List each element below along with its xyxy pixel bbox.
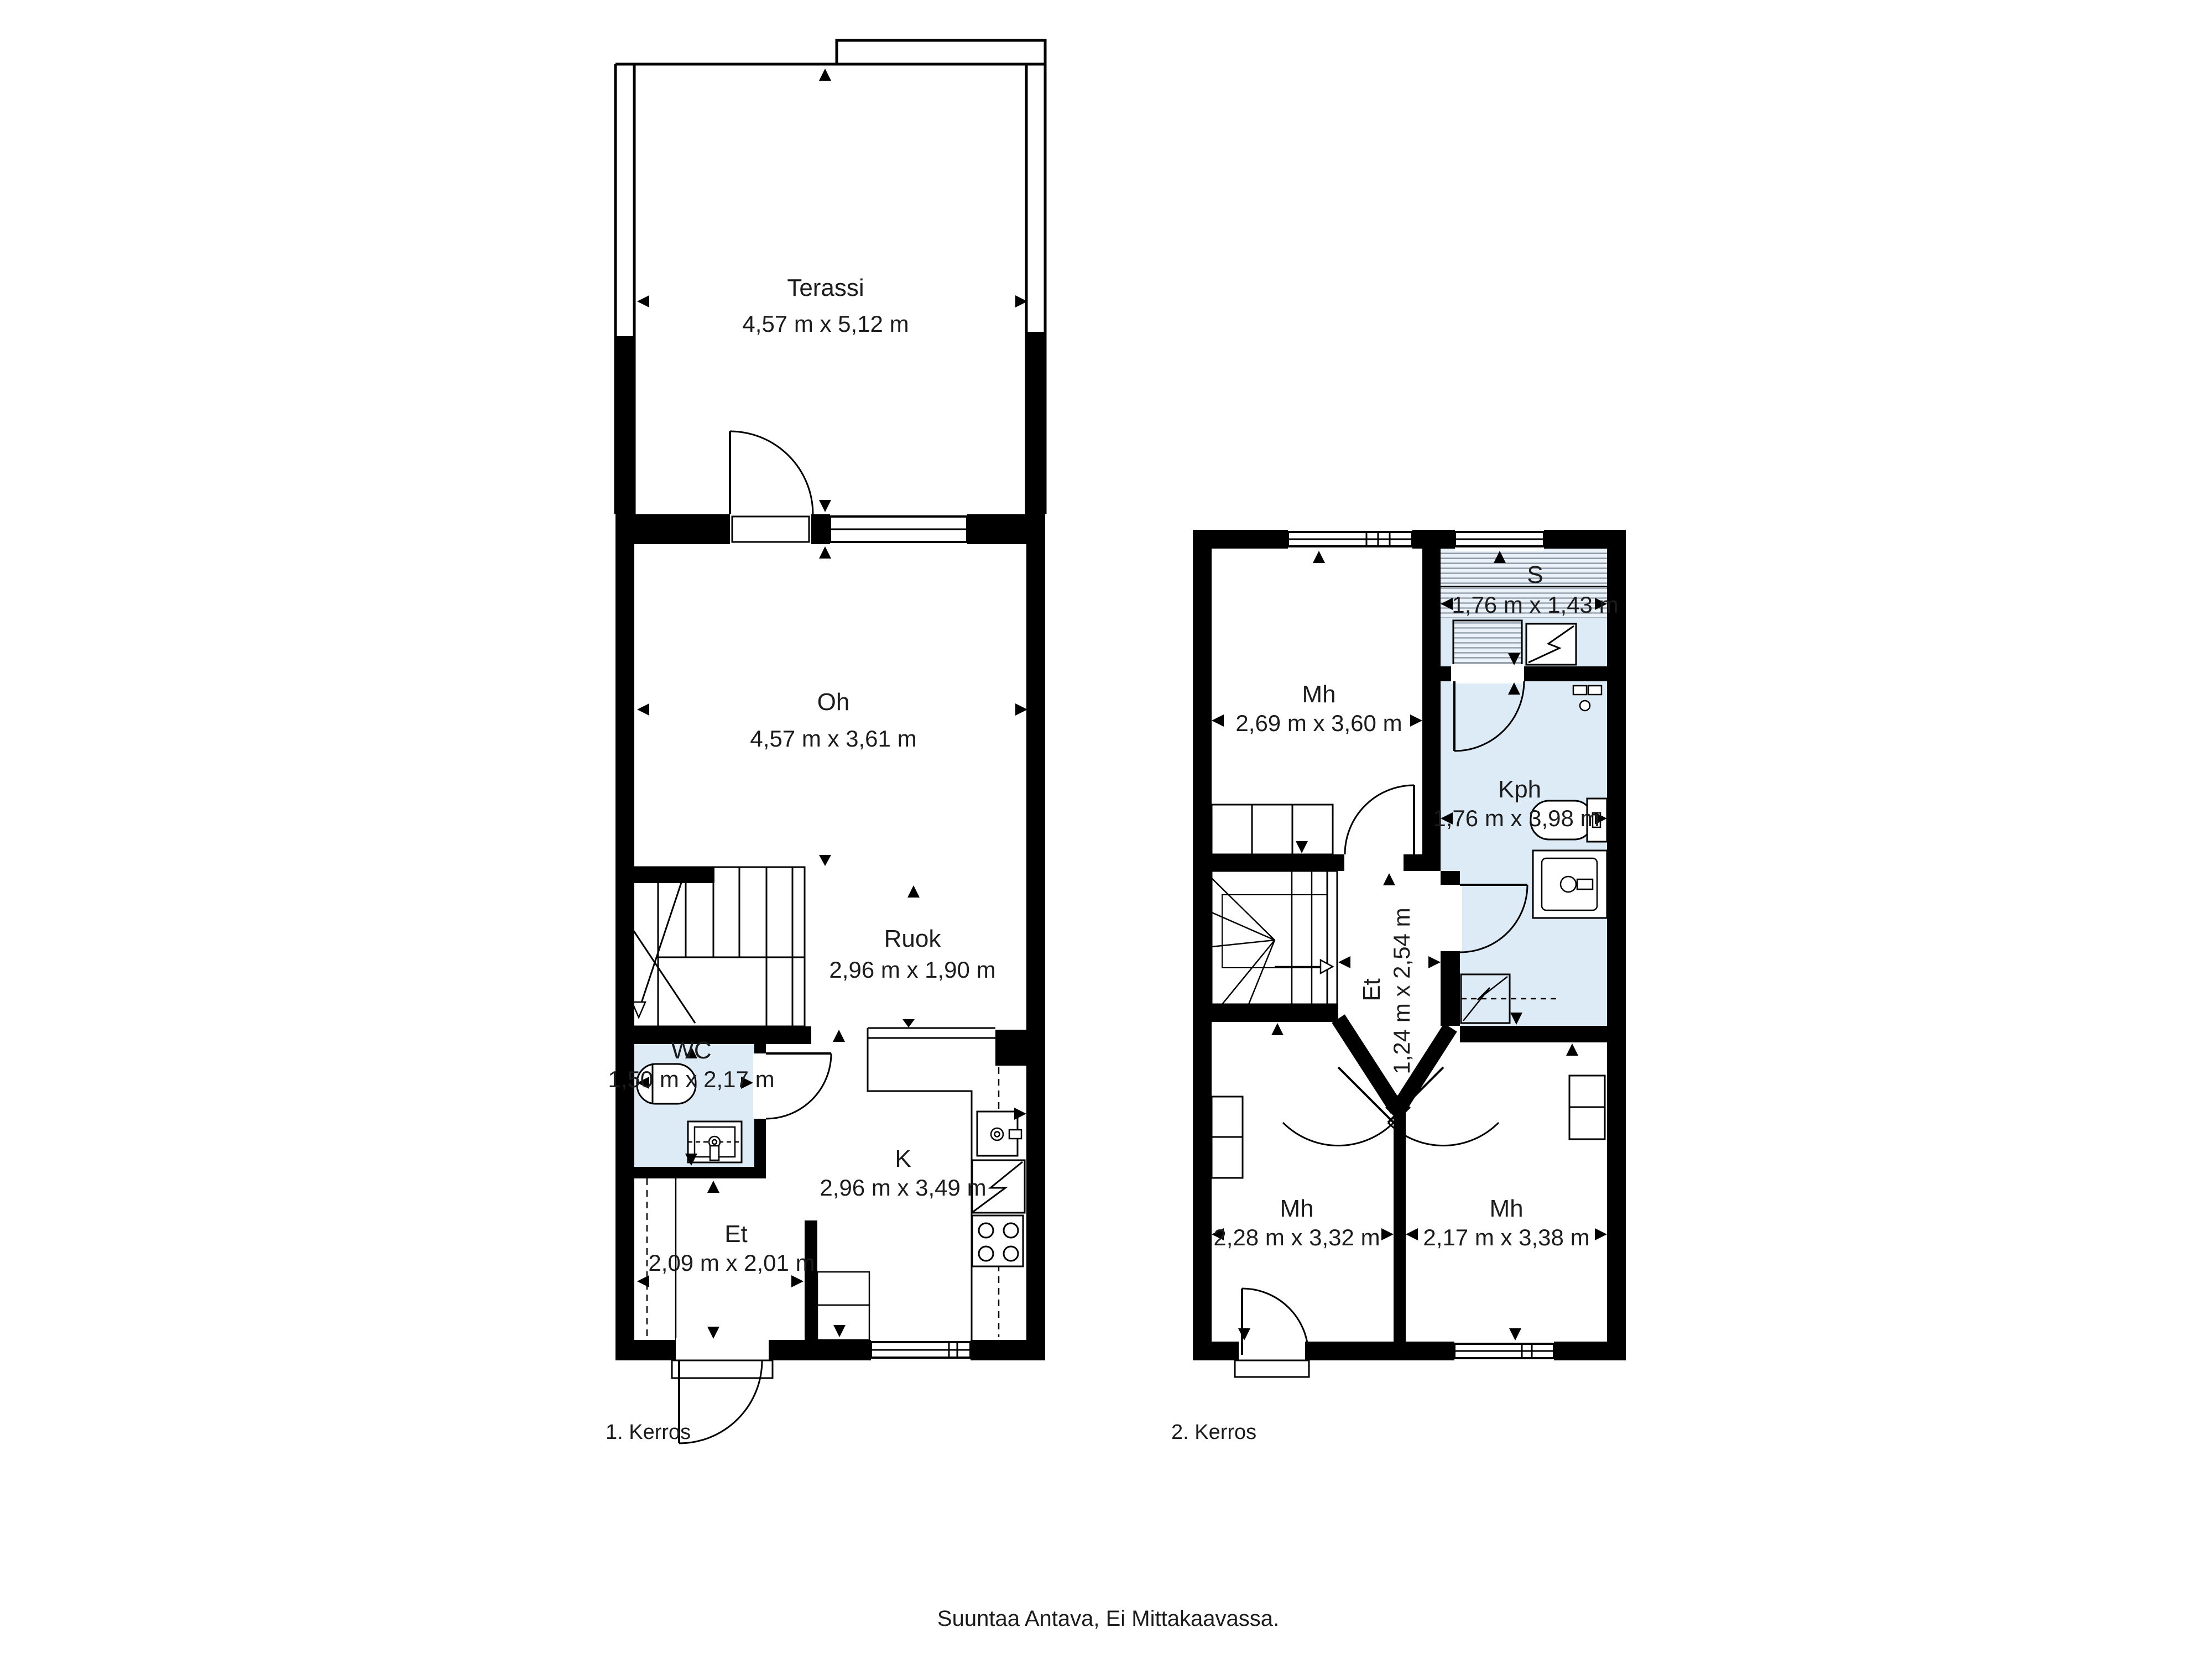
- room-dims-terassi: 4,57 m x 5,12 m: [742, 311, 909, 337]
- room-label-et1: Et: [724, 1220, 748, 1248]
- room-label-k: K: [895, 1145, 911, 1172]
- bedroom-window-icon: [1288, 528, 1412, 551]
- floor-2-plan: Mh 2,69 m x 3,60 m S 1,76 m x 1,43 m Kph…: [1171, 528, 1626, 1444]
- stairs-icon: [618, 867, 805, 1026]
- room-dims-mh-se: 2,17 m x 3,38 m: [1423, 1224, 1589, 1250]
- closet-right-icon: [1569, 1076, 1605, 1139]
- room-dims-et1: 2,09 m x 2,01 m: [648, 1250, 815, 1276]
- floor-plan-canvas: Terassi 4,57 m x 5,12 m Oh 4,57 m x 3,61…: [0, 0, 2212, 1659]
- sauna-stove-icon: [1526, 624, 1576, 665]
- room-dims-kph: 1,76 m x 3,98 m: [1433, 805, 1599, 831]
- floor-1-label: 1. Kerros: [606, 1421, 691, 1444]
- floor-1-plan: Terassi 4,57 m x 5,12 m Oh 4,57 m x 3,61…: [606, 40, 1045, 1444]
- room-label-wc: WC: [671, 1037, 711, 1064]
- room-label-ruok: Ruok: [884, 925, 942, 952]
- room-label-oh: Oh: [817, 688, 850, 716]
- closet-row-icon: [1212, 805, 1333, 854]
- room-label-et2: Et: [1358, 978, 1385, 1001]
- kitchen-cabinets: [817, 1272, 869, 1340]
- floor-2-label: 2. Kerros: [1171, 1421, 1256, 1444]
- floor-plan-page: Terassi 4,57 m x 5,12 m Oh 4,57 m x 3,61…: [0, 0, 2212, 1659]
- room-label-mh-nw: Mh: [1302, 681, 1335, 708]
- room-dims-ruok: 2,96 m x 1,90 m: [829, 957, 995, 983]
- room-label-mh-se: Mh: [1489, 1195, 1523, 1222]
- room-dims-wc: 1,50 m x 2,17 m: [608, 1066, 774, 1092]
- room-dims-mh-sw: 2,28 m x 3,32 m: [1213, 1224, 1380, 1250]
- room-dims-k: 2,96 m x 3,49 m: [820, 1175, 986, 1201]
- room-label-kph: Kph: [1498, 776, 1541, 803]
- sauna-window-icon: [1455, 528, 1544, 551]
- room-dims-mh-nw: 2,69 m x 3,60 m: [1235, 710, 1402, 736]
- room-label-terassi: Terassi: [787, 274, 864, 301]
- kitchen-window-icon: [871, 1338, 971, 1363]
- bottom-window-icon: [1454, 1339, 1554, 1363]
- room-label-mh-sw: Mh: [1280, 1195, 1313, 1222]
- washing-machine-icon: [1533, 851, 1607, 918]
- room-label-s: S: [1527, 561, 1543, 588]
- disclaimer-note: Suuntaa Antava, Ei Mittakaavassa.: [937, 1606, 1279, 1631]
- closet-left-icon: [1212, 1097, 1243, 1178]
- stairs-upper-icon: [1212, 871, 1337, 1004]
- stove-icon: [972, 1215, 1023, 1266]
- window-icon: [830, 512, 967, 546]
- room-dims-s: 1,76 m x 1,43 m: [1452, 592, 1618, 618]
- room-dims-oh: 4,57 m x 3,61 m: [750, 726, 916, 752]
- terrace-door: [730, 431, 813, 546]
- room-dims-et2: 1,24 m x 2,54 m: [1389, 907, 1415, 1074]
